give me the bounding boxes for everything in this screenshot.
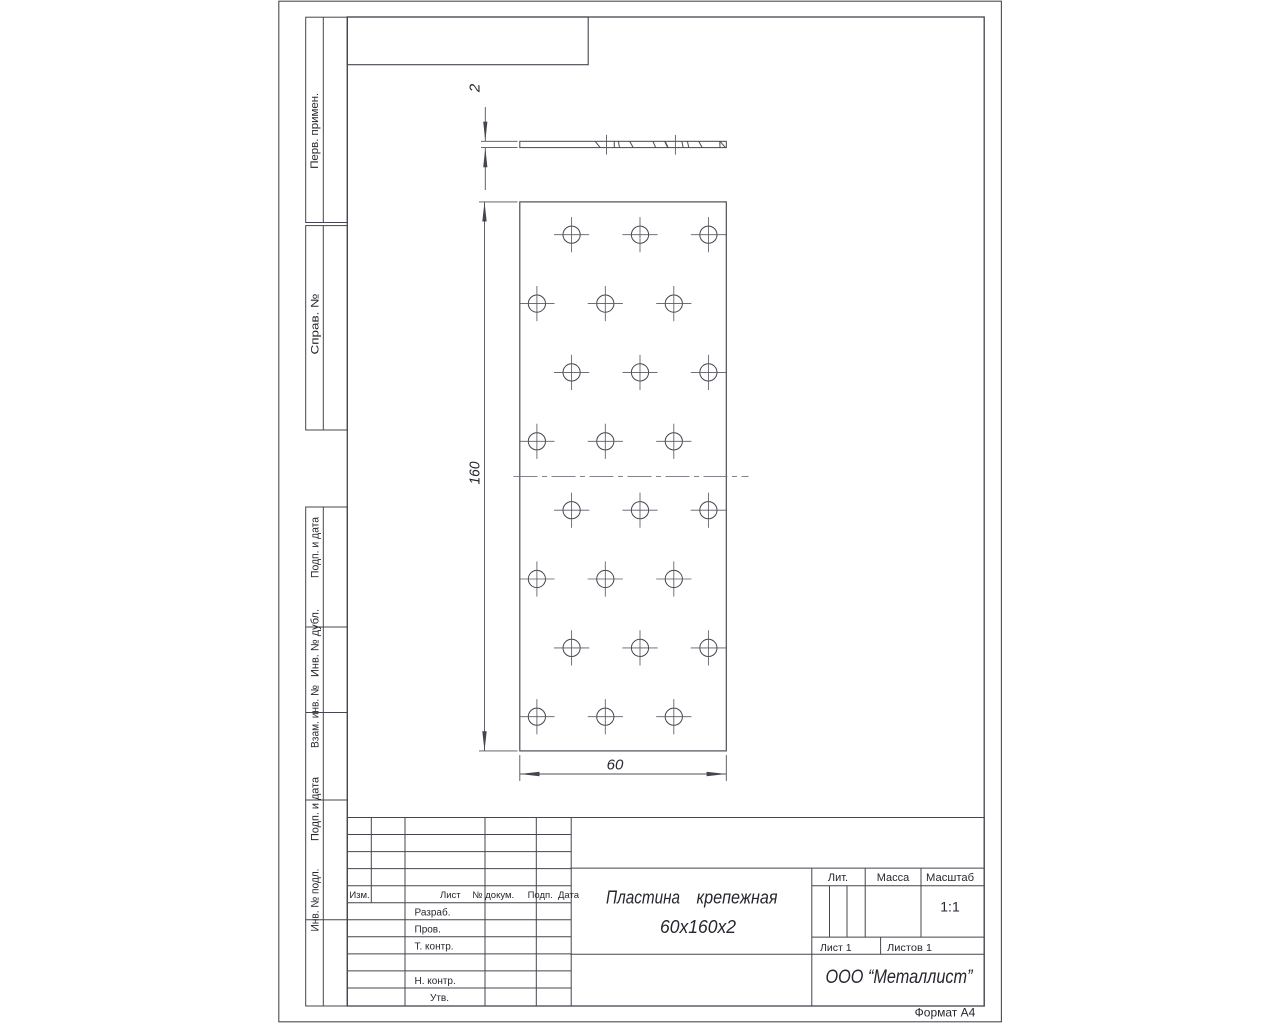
svg-text:Пров.: Пров.	[415, 924, 441, 935]
svg-text:крепежная: крепежная	[697, 888, 778, 908]
svg-text:Разраб.: Разраб.	[415, 906, 451, 918]
svg-text:Н. контр.: Н. контр.	[415, 976, 456, 987]
svg-text:Листов 1: Листов 1	[887, 942, 932, 954]
svg-text:Подп.: Подп.	[528, 890, 553, 901]
svg-text:Пластина: Пластина	[606, 888, 680, 908]
svg-text:Справ. №: Справ. №	[310, 293, 322, 354]
svg-text:ООО “Металлист”: ООО “Металлист”	[826, 967, 974, 988]
svg-text:Лит.: Лит.	[828, 872, 848, 884]
svg-text:Перв. примен.: Перв. примен.	[309, 93, 321, 169]
svg-text:60х160х2: 60х160х2	[660, 917, 736, 937]
svg-text:Масса: Масса	[877, 872, 910, 884]
svg-text:Инв. № подл.: Инв. № подл.	[310, 869, 322, 932]
svg-text:Т. контр.: Т. контр.	[415, 942, 454, 953]
svg-text:Лист 1: Лист 1	[820, 942, 852, 954]
svg-text:Изм.: Изм.	[349, 890, 369, 901]
svg-text:60: 60	[607, 757, 624, 774]
svg-text:2: 2	[467, 83, 484, 93]
svg-text:Дата: Дата	[558, 890, 580, 901]
svg-text:1:1: 1:1	[940, 899, 960, 915]
svg-text:Утв.: Утв.	[430, 993, 449, 1004]
svg-text:160: 160	[467, 461, 484, 485]
svg-text:Взам. инв. №: Взам. инв. №	[310, 685, 322, 748]
svg-text:Масштаб: Масштаб	[926, 872, 974, 884]
svg-text:Инв. № дубл.: Инв. № дубл.	[310, 609, 322, 677]
svg-text:Подп. и дата: Подп. и дата	[310, 516, 322, 578]
svg-text:№ докум.: № докум.	[472, 890, 514, 901]
svg-text:Лист: Лист	[440, 890, 461, 901]
svg-text:Формат А4: Формат А4	[915, 1006, 976, 1020]
svg-text:Подп. и дата: Подп. и дата	[310, 776, 322, 841]
